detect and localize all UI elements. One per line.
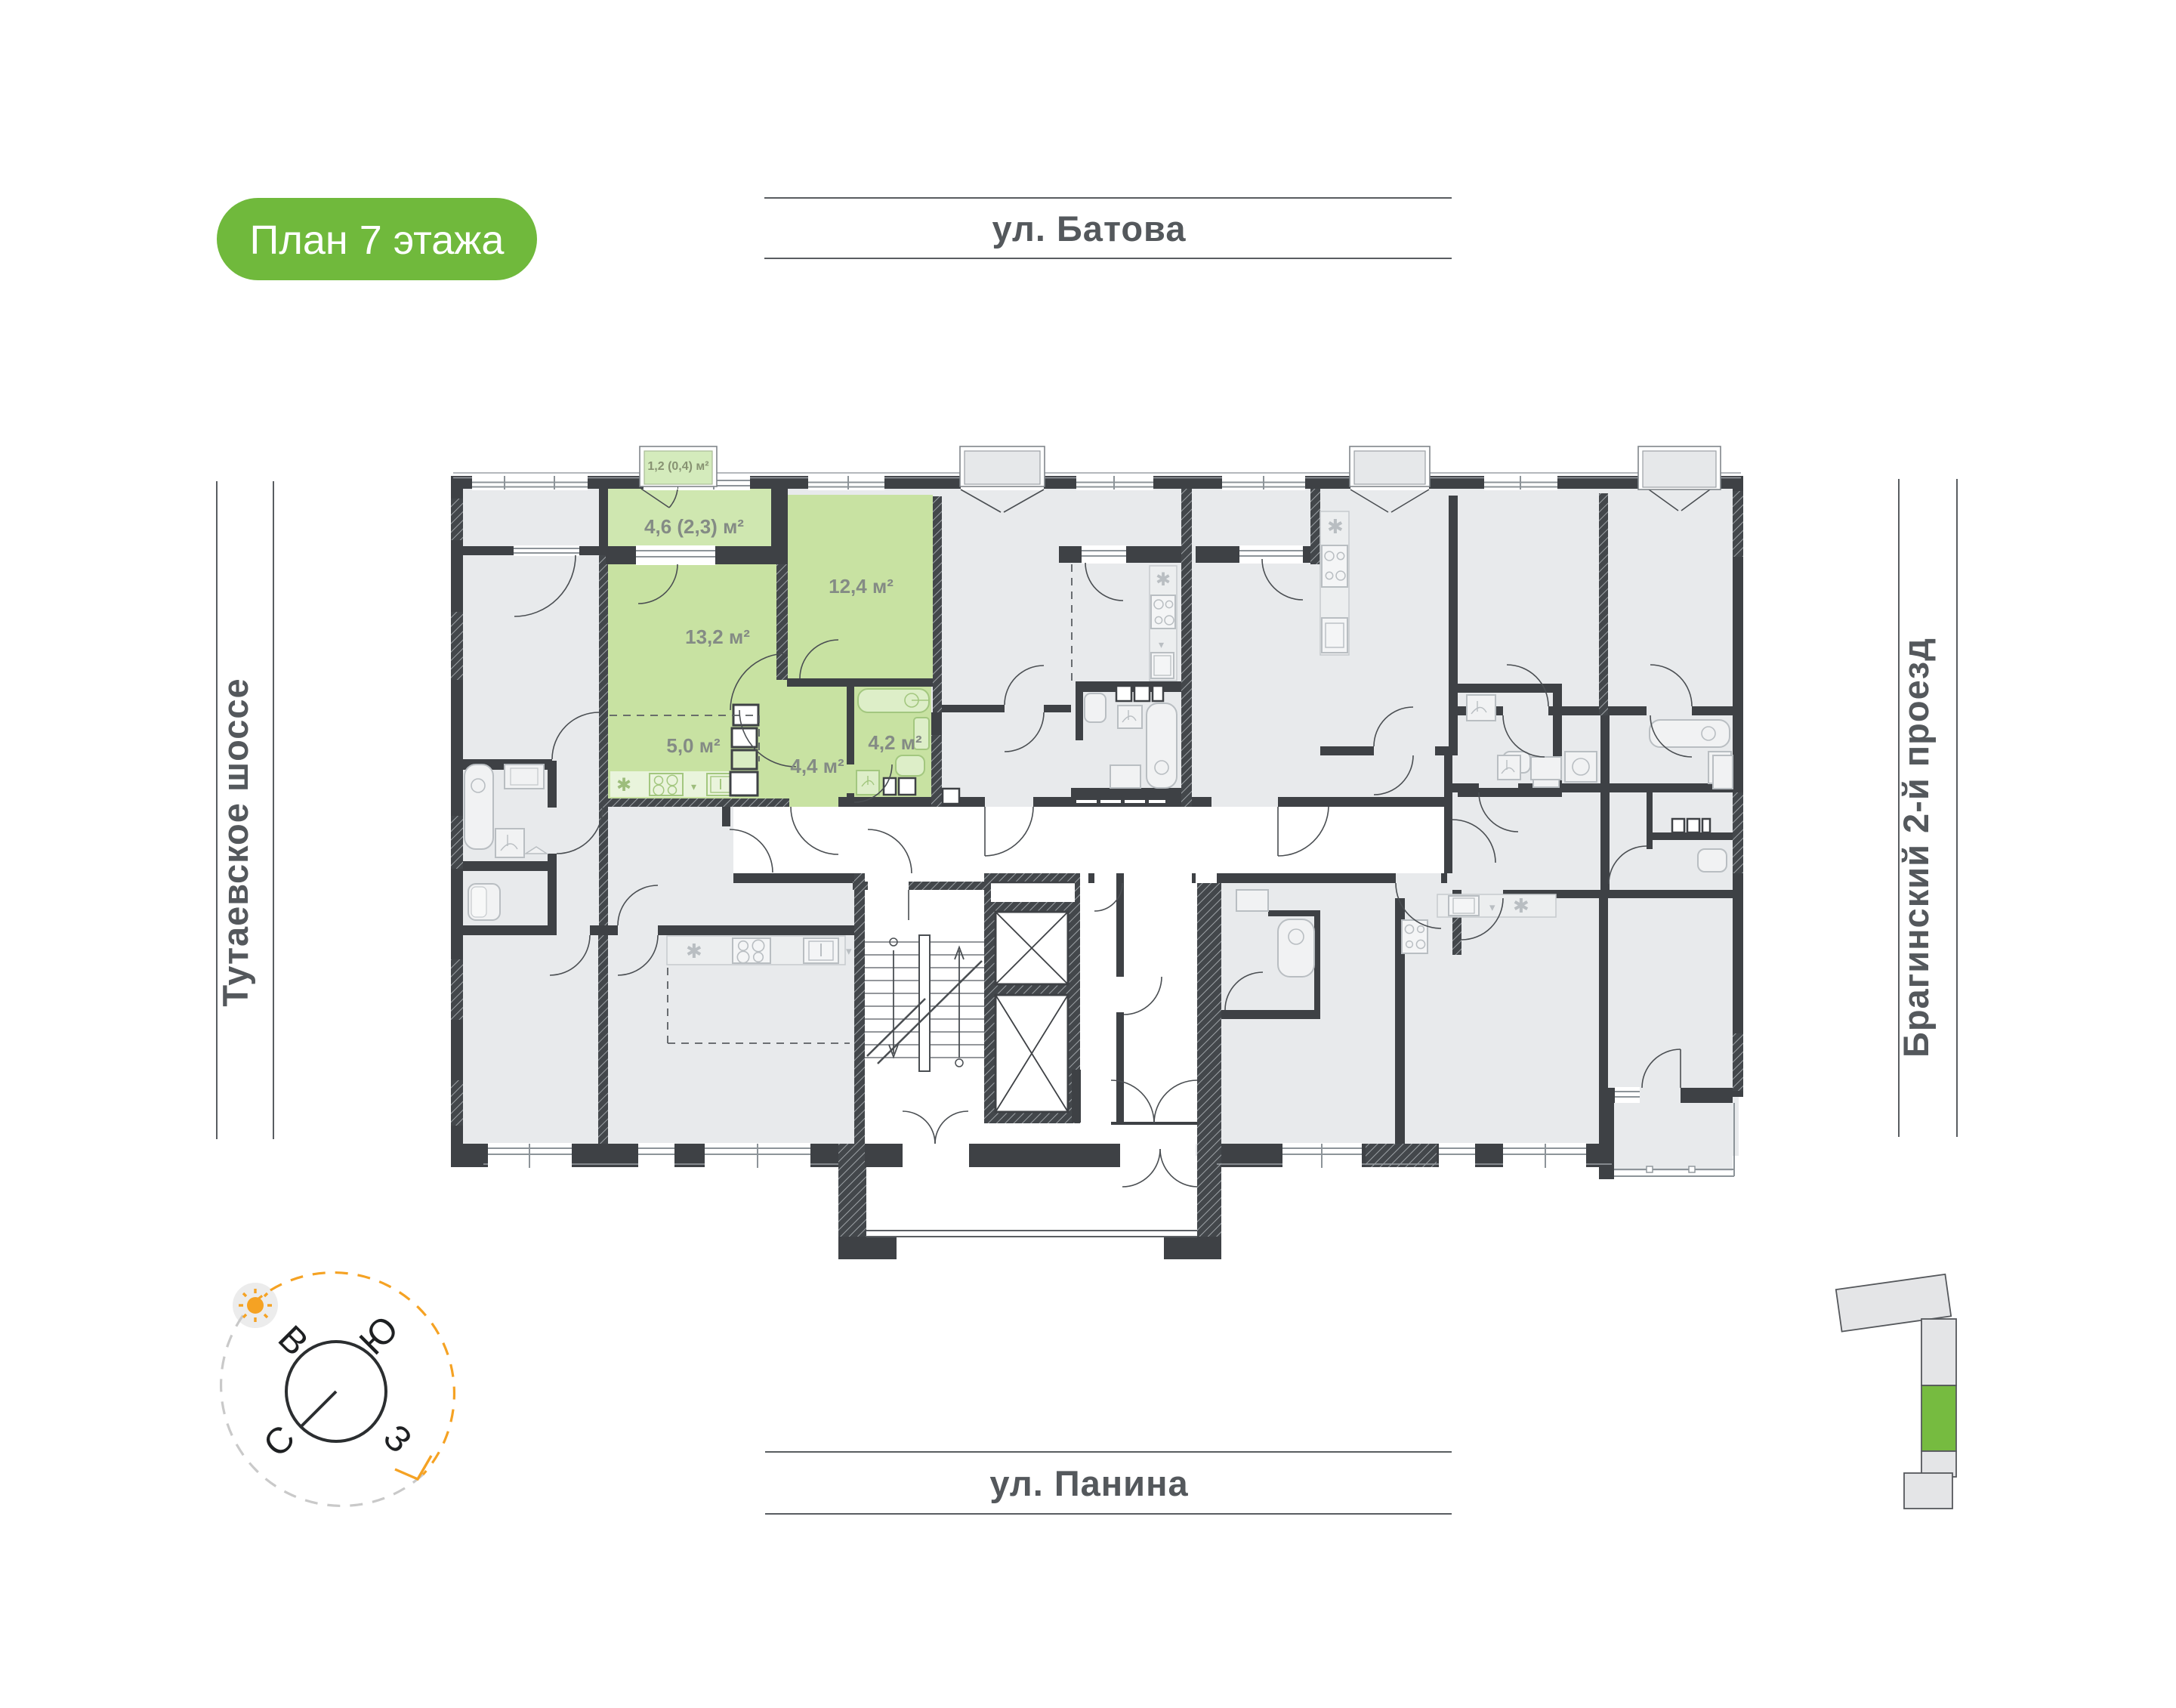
- svg-text:▾: ▾: [691, 780, 696, 792]
- svg-text:12,4 м²: 12,4 м²: [829, 575, 894, 598]
- svg-text:✱: ✱: [686, 940, 702, 962]
- svg-text:План 7 этажа: План 7 этажа: [250, 218, 505, 263]
- svg-text:З: З: [375, 1417, 419, 1461]
- svg-text:✱: ✱: [616, 775, 631, 795]
- svg-text:В: В: [270, 1318, 316, 1364]
- svg-text:4,2 м²: 4,2 м²: [868, 731, 922, 754]
- svg-text:13,2 м²: 13,2 м²: [685, 625, 750, 648]
- svg-text:ул. Панина: ул. Панина: [989, 1463, 1188, 1503]
- svg-text:ул. Батова: ул. Батова: [992, 208, 1187, 249]
- svg-text:4,6 (2,3) м²: 4,6 (2,3) м²: [644, 515, 744, 538]
- svg-text:5,0 м²: 5,0 м²: [666, 734, 721, 757]
- svg-text:1,2 (0,4) м²: 1,2 (0,4) м²: [647, 460, 708, 473]
- svg-text:Брагинский 2-й проезд: Брагинский 2-й проезд: [1896, 638, 1936, 1058]
- svg-text:4,4 м²: 4,4 м²: [790, 755, 844, 777]
- svg-text:✱: ✱: [1327, 515, 1344, 538]
- svg-text:Ю: Ю: [352, 1308, 406, 1363]
- svg-text:С: С: [256, 1418, 303, 1465]
- svg-text:▾: ▾: [1489, 901, 1495, 914]
- svg-text:✱: ✱: [1513, 894, 1529, 917]
- svg-text:▾: ▾: [846, 945, 852, 958]
- svg-text:Тутаевское шоссе: Тутаевское шоссе: [215, 678, 255, 1006]
- svg-text:▾: ▾: [1159, 638, 1164, 650]
- svg-text:✱: ✱: [1156, 570, 1171, 590]
